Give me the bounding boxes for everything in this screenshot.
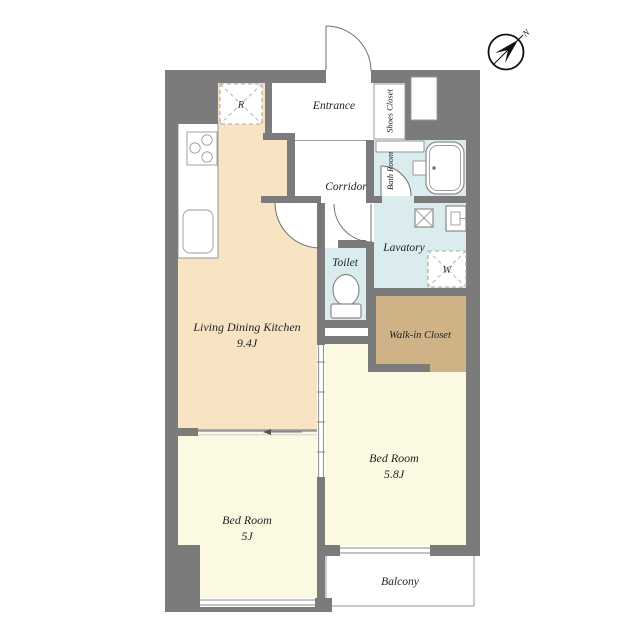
toilet-icon [331,275,361,319]
label-lavatory: Lavatory [382,242,425,254]
north-label: N [520,27,533,40]
room-bedroom-58j-floor [317,344,466,545]
sliding-door-ldk-bedroom58j [317,345,325,477]
floor-plan: N Entrance Shoes Closet Corridor Bath Ro… [0,0,640,640]
label-entrance: Entrance [312,100,355,112]
bath-counter [376,141,424,152]
entrance-door-opening [326,70,371,83]
svg-text:Living Dining Kitchen: Living Dining Kitchen [192,320,300,334]
svg-text:Bed Room: Bed Room [222,513,272,527]
label-bath-room: Bath Room [385,152,395,190]
label-corridor: Corridor [325,181,367,193]
room-corridor-floor [287,140,366,203]
bath-ledge [413,161,426,175]
label-washing-machine: W [443,265,453,276]
svg-text:Bed Room: Bed Room [369,451,419,465]
door-opening-lavatory [366,203,374,242]
label-walkin-closet: Walk-in Closet [389,330,452,341]
window-bedroom-58j [340,546,430,555]
meter-box [411,77,437,120]
compass-icon: N [489,27,533,70]
window-bedroom-5j [200,598,315,607]
label-toilet: Toilet [332,257,359,269]
floor-plan-page: N Entrance Shoes Closet Corridor Bath Ro… [0,0,640,640]
vanity-unit-icon [446,206,468,231]
label-balcony: Balcony [381,576,420,588]
svg-text:9.4J: 9.4J [237,336,258,350]
label-shoes-closet: Shoes Closet [385,89,395,133]
entrance-door [326,26,371,71]
svg-text:5J: 5J [241,529,253,543]
label-refrigerator: R [237,100,245,111]
washbasin-icon [415,209,433,227]
kitchen-counter [178,122,218,258]
svg-text:5.8J: 5.8J [384,467,405,481]
